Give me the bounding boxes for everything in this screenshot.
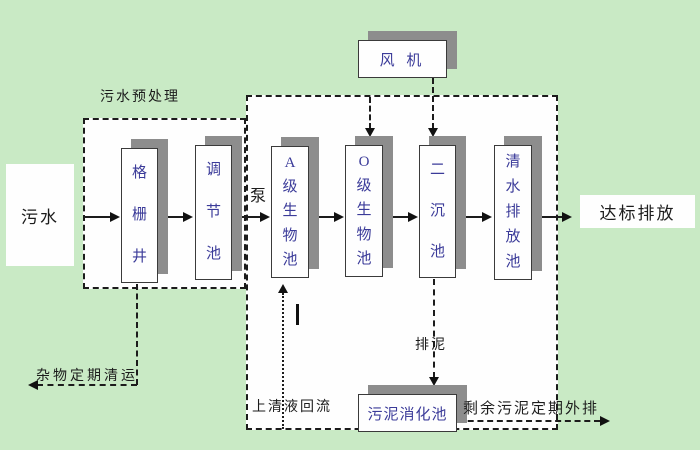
arrowhead: [482, 212, 492, 222]
arrowhead: [334, 212, 344, 222]
arrowhead: [110, 212, 120, 222]
air-line-to-o-tank: [369, 97, 371, 129]
arrowhead: [260, 212, 270, 222]
wastewater-process-flow-diagram: 污水预处理 污水 达标排放 风 机 格栅井 调节池 A级生物池 O级生物池 二沉…: [0, 0, 700, 450]
tank-o-bio: O级生物池: [345, 145, 383, 277]
excess-sludge-line: [458, 420, 600, 422]
tank-label: 调节池: [196, 146, 231, 279]
arrowhead: [562, 212, 572, 222]
sludge-discharge-line: [433, 279, 435, 378]
flow-line-influent: [83, 216, 110, 218]
tank-secondary-sedimentation: 二沉池: [419, 145, 456, 278]
tank-a-bio: A级生物池: [271, 146, 309, 278]
arrowhead: [600, 416, 610, 426]
tank-label: 清水排放池: [495, 146, 531, 279]
debris-removal-label: 杂物定期清运: [36, 365, 138, 385]
tank-label: 污泥消化池: [367, 403, 447, 424]
tank-label: 格栅井: [122, 149, 157, 282]
blower-label: 风 机: [380, 49, 426, 70]
tank-clean-water-discharge: 清水排放池: [494, 145, 532, 280]
influent-box: 污水: [6, 164, 74, 266]
air-line-to-sedimentation: [432, 78, 434, 129]
pretreatment-zone-label: 污水预处理: [100, 86, 180, 106]
arrowhead: [278, 284, 288, 293]
arrowhead: [183, 212, 193, 222]
blower-box: 风 机: [358, 40, 447, 78]
sludge-discharge-label: 排泥: [415, 334, 447, 354]
tank-label: O级生物池: [346, 146, 382, 276]
tank-label: 二沉池: [420, 146, 455, 277]
supernatant-return-label: 上清液回流: [252, 396, 332, 416]
arrowhead: [408, 212, 418, 222]
tank-label: A级生物池: [272, 147, 308, 277]
pump-label: 泵: [250, 182, 268, 206]
tank-grid-well: 格栅井: [121, 148, 158, 283]
sludge-digestion-tank: 污泥消化池: [358, 394, 457, 432]
effluent-box: 达标排放: [580, 195, 695, 228]
tank-regulating: 调节池: [195, 145, 232, 280]
return-line-tick: [296, 304, 299, 325]
excess-sludge-label: 剩余污泥定期外排: [463, 397, 599, 418]
